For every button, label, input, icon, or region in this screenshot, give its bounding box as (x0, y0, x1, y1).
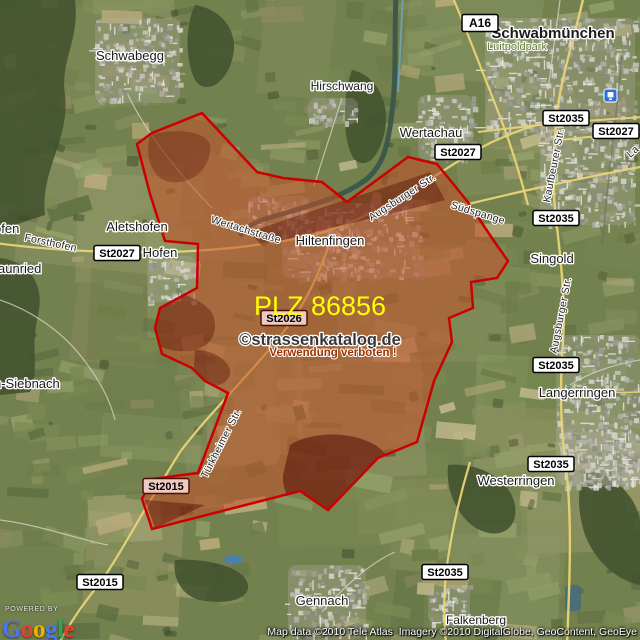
plz-code-label: PLZ 86856 (254, 291, 386, 321)
place-label: Hiltenfingen (296, 233, 365, 248)
road-badge-label: St2027 (598, 126, 633, 138)
road-badge: St2035 (543, 111, 589, 126)
google-logo-letter: e (63, 616, 74, 640)
road-badge-label: St2035 (548, 113, 583, 125)
place-label: Hirschwang (311, 79, 374, 93)
place-label: Schwabmünchen (491, 25, 614, 42)
road-badge-label: St2027 (440, 147, 475, 159)
road-badge-label: St2027 (99, 248, 134, 260)
place-label: Hofen (143, 245, 178, 260)
road-badge-label: St2035 (427, 567, 462, 579)
place-label: Singold (530, 251, 573, 266)
place-label: Langerringen (539, 385, 616, 400)
road-badge-label: St2035 (538, 360, 573, 372)
map-canvas[interactable]: WertachstraßeAugsburger Str.SüdspangeTür… (0, 0, 640, 640)
road-badge: St2015 (77, 575, 123, 590)
road-badge-label: St2035 (533, 459, 568, 471)
road-badge: St2035 (422, 565, 468, 580)
place-label: ofen (0, 221, 19, 236)
road-badge: St2035 (533, 358, 579, 373)
place-label: Gennach (296, 593, 349, 608)
road-badge: St2035 (528, 457, 574, 472)
google-logo-letter: G (2, 616, 21, 640)
place-label: Westerringen (477, 473, 554, 488)
road-badge: St2027 (94, 246, 140, 261)
warning-text: Verwendung verboten ! (269, 347, 396, 359)
place-label: aunried (0, 261, 41, 276)
road-badge-label: St2035 (538, 213, 573, 225)
road-badge: St2015 (143, 479, 189, 494)
place-label: Luitpoldpark (487, 41, 547, 53)
road-badge-label: St2015 (148, 481, 183, 493)
place-label: Falkenberg (446, 613, 506, 627)
place-label: Aletshofen (106, 219, 167, 234)
station-icon[interactable] (604, 89, 617, 102)
place-label: Wertachau (400, 125, 463, 140)
road-badge: St2027 (593, 124, 639, 139)
place-label: n-Siebnach (0, 376, 60, 391)
google-logo-letter: o (33, 616, 45, 640)
road-badge-label: A16 (469, 16, 491, 30)
powered-by-label: POWERED BY (5, 606, 58, 613)
map-viewport[interactable]: WertachstraßeAugsburger Str.SüdspangeTür… (0, 0, 640, 640)
google-logo-letter: o (21, 616, 33, 640)
road-badge-label: St2015 (82, 577, 117, 589)
road-badge: St2027 (435, 145, 481, 160)
map-attribution: Map data ©2010 Tele Atlas Imagery ©2010 … (267, 626, 637, 638)
place-label: Schwabegg (96, 48, 164, 63)
google-logo-letter: g (45, 616, 57, 640)
road-badge: A16 (462, 15, 498, 32)
road-badge: St2035 (533, 211, 579, 226)
google-logo[interactable]: Google (2, 617, 74, 640)
